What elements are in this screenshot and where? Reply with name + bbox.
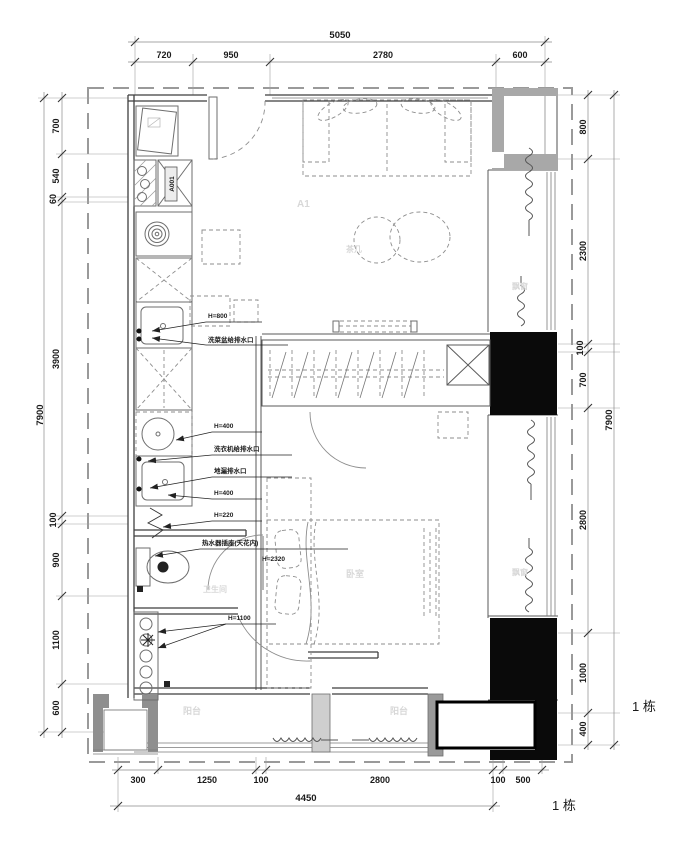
- room-label-bay-top: 飘窗: [512, 281, 528, 291]
- room-label-bedroom: 卧室: [346, 568, 364, 579]
- room-label-coffee-table: 茶几: [345, 244, 362, 254]
- toilet-tank: [136, 548, 150, 586]
- socket-symbol: [164, 681, 170, 687]
- dim-top-seg-4: 600: [512, 50, 527, 60]
- room-label-bay-bottom: 飘窗: [512, 567, 528, 577]
- dim-left-total: 7900: [35, 404, 46, 425]
- kitchen-fixtures: A001: [134, 106, 192, 538]
- room-label-living: A1: [297, 199, 310, 210]
- room-label-balcony-left: 阳台: [183, 705, 201, 716]
- dim-bottom-total: 4450: [295, 793, 316, 804]
- kitchen-sink-height-label: H=800: [208, 313, 228, 320]
- hall-door-swing: [238, 616, 310, 661]
- room-label-balcony-right: 阳台: [390, 705, 408, 716]
- dim-right-seg-2: 2300: [578, 241, 588, 261]
- kitchen-sink-note-label: 洗菜盆给排水口: [208, 335, 254, 344]
- water-heater-note-label: 热水器插座(天花内): [202, 538, 258, 547]
- floor-plan-sheet: 5050 720 950 2780 600 300 1250 100 2800 …: [0, 0, 689, 841]
- dimension-chain-left: 7900 700 540 60 3900 100 900 1100 600: [35, 92, 128, 738]
- break-symbol: [148, 508, 163, 538]
- ceiling-light-symbol: [141, 633, 155, 647]
- dim-right-seg-1: 800: [578, 119, 588, 134]
- dim-bottom-seg-2: 1250: [197, 775, 217, 785]
- bedroom-door-swing: [310, 412, 366, 468]
- fridge: [136, 106, 178, 156]
- bed: [267, 478, 439, 688]
- room-label-bathroom: 卫生间: [203, 584, 227, 594]
- dim-top-total: 5050: [329, 30, 350, 41]
- cabinet-code-label: A001: [169, 176, 176, 192]
- bathroom-fixtures: [134, 548, 189, 700]
- dim-right-seg-5: 2800: [578, 510, 588, 530]
- dim-left-seg-1: 700: [51, 118, 61, 133]
- floor-drain-note-label: 地漏排水口: [214, 466, 247, 475]
- coffee-tables: [354, 212, 450, 263]
- heater-rack: [134, 612, 158, 700]
- building-label-bottom: 1 栋: [552, 798, 576, 813]
- low-point-height-label: H=220: [214, 512, 234, 519]
- dim-top-seg-2: 950: [223, 50, 238, 60]
- dim-top-seg-1: 720: [156, 50, 171, 60]
- washer-note-label: 洗衣机给排水口: [214, 444, 260, 453]
- tv-console: [333, 321, 417, 332]
- dim-left-seg-3: 60: [48, 194, 58, 204]
- wardrobe: [262, 334, 490, 406]
- dim-right-seg-3: 100: [575, 340, 585, 355]
- dim-bottom-seg-5: 100: [490, 775, 505, 785]
- dim-left-seg-7: 1100: [51, 630, 61, 650]
- dim-left-seg-6: 900: [51, 552, 61, 567]
- water-heater-height-label: H=2320: [262, 556, 285, 563]
- left-bay-window: [93, 694, 158, 754]
- round-basin: [136, 412, 192, 456]
- dim-left-seg-8: 600: [51, 700, 61, 715]
- dim-bottom-seg-6: 500: [515, 775, 530, 785]
- entry-door-swing: [213, 101, 265, 159]
- laundry-sink-height-label: H=400: [214, 490, 234, 497]
- switch-height-label: H=1100: [228, 615, 251, 622]
- structural-columns: [437, 332, 557, 760]
- furniture: [190, 95, 490, 688]
- dim-bottom-seg-4: 2800: [370, 775, 390, 785]
- nightstand: [438, 412, 468, 438]
- doors: [208, 97, 366, 661]
- dimension-chain-bottom: 300 1250 100 2800 100 500 4450 1 栋: [110, 757, 576, 813]
- dim-bottom-seg-3: 100: [253, 775, 268, 785]
- laundry-sink: [136, 456, 192, 506]
- annotations: H=800 洗菜盆给排水口 H=400 洗衣机给排水口 地漏排水口 H=400 …: [148, 313, 348, 648]
- dim-right-total: 7900: [604, 409, 615, 430]
- dim-left-seg-5: 100: [48, 512, 58, 527]
- dim-left-seg-4: 3900: [51, 349, 61, 369]
- entry-door-leaf: [209, 97, 217, 159]
- room-labels: A1 卧室 卫生间 阳台 阳台 飘窗 飘窗 茶几: [183, 199, 528, 716]
- cabinet-a001: A001: [158, 160, 192, 206]
- dim-left-seg-2: 540: [51, 168, 61, 183]
- dim-right-seg-6: 1000: [578, 663, 588, 683]
- building-label-right: 1 栋: [632, 699, 656, 714]
- basin-height-label: H=400: [214, 423, 234, 430]
- dim-right-seg-4: 700: [578, 372, 588, 387]
- cooktop: [134, 160, 156, 206]
- floor-drain: [137, 586, 143, 592]
- dim-bottom-seg-1: 300: [130, 775, 145, 785]
- kitchen-sink: [136, 302, 192, 348]
- sofa: [303, 95, 471, 176]
- floor-plan-svg: 5050 720 950 2780 600 300 1250 100 2800 …: [0, 0, 689, 841]
- dim-top-seg-3: 2780: [373, 50, 393, 60]
- washer: [136, 212, 192, 256]
- dim-right-seg-7: 400: [578, 721, 588, 736]
- dimension-chain-top: 5050 720 950 2780 600: [128, 30, 552, 95]
- shaft: [492, 88, 558, 170]
